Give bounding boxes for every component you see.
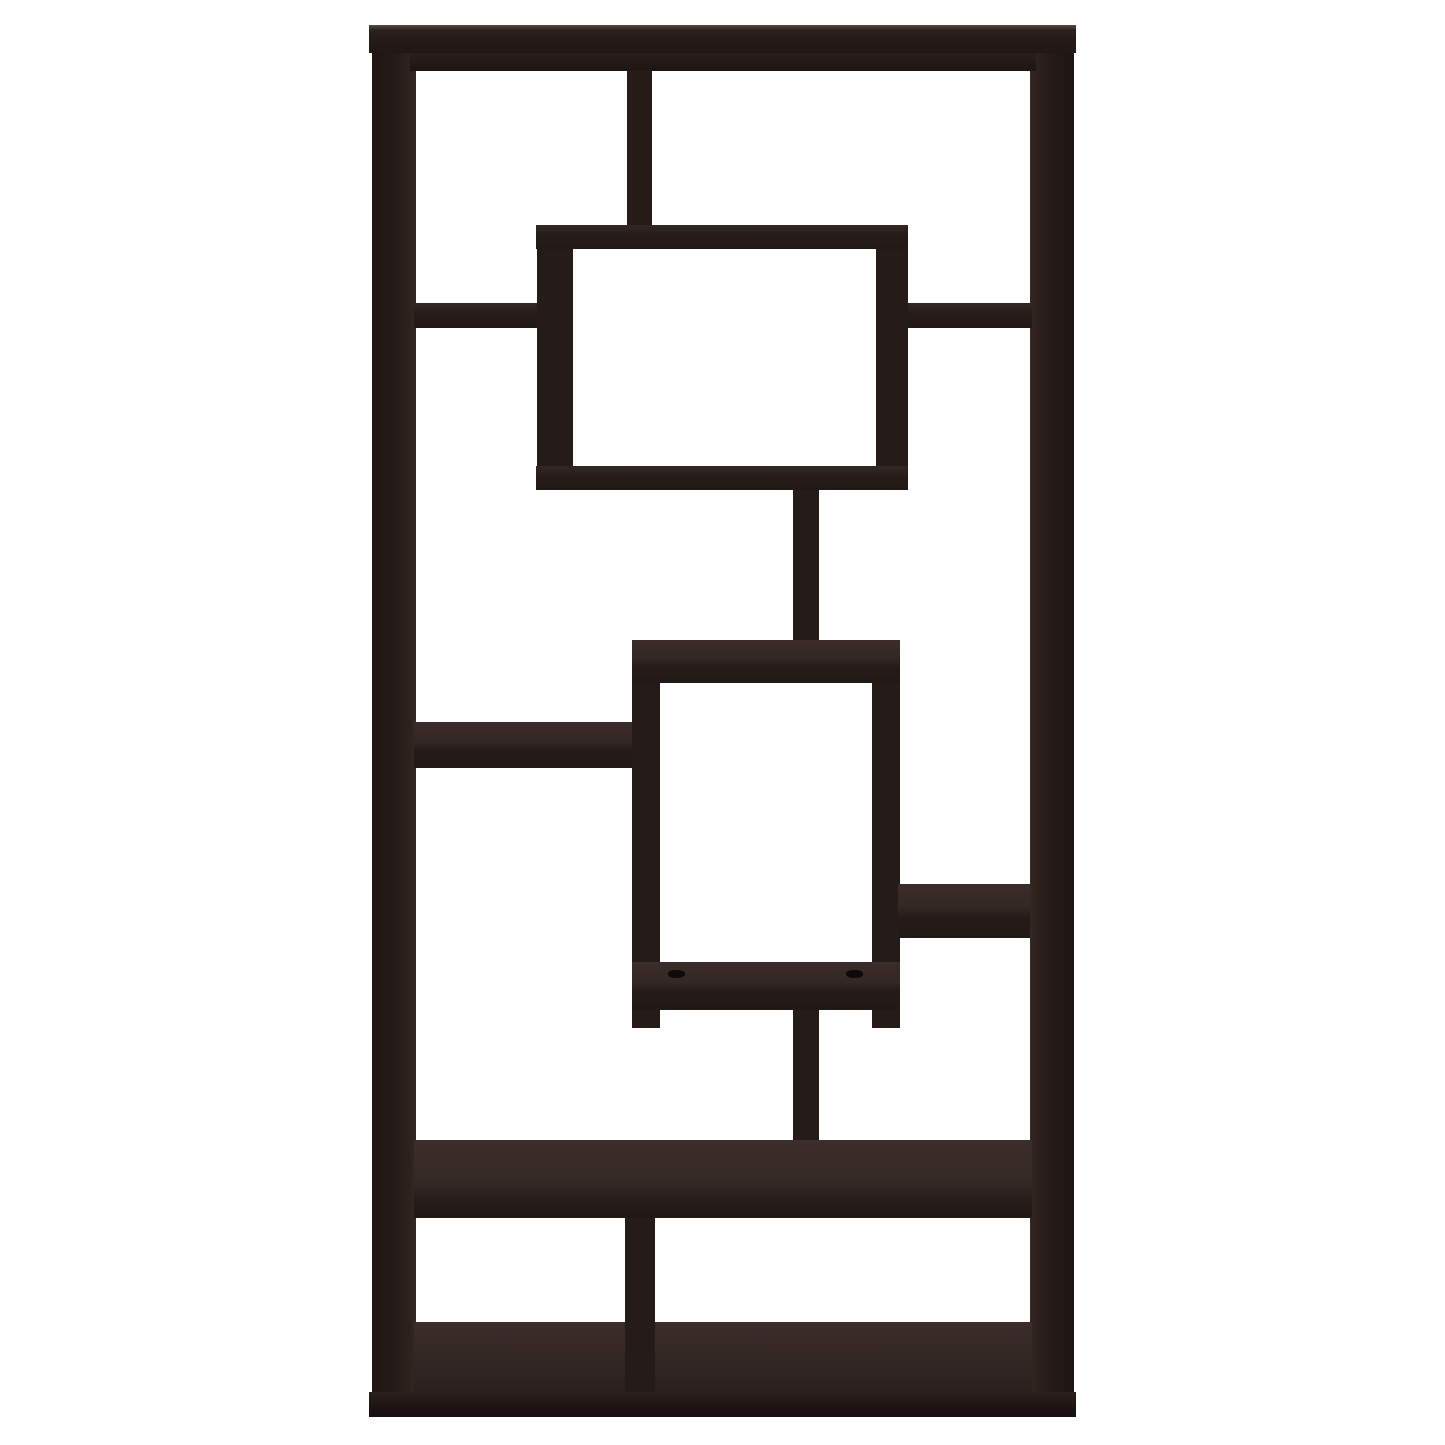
- top-cap-board: [369, 25, 1076, 53]
- middle-left-shelf: [414, 722, 632, 768]
- center-divider-lower: [793, 1010, 819, 1140]
- upper-box-top-shelf: [536, 225, 908, 249]
- center-divider-upper: [793, 490, 819, 642]
- bookshelf-product-photo: [0, 0, 1445, 1445]
- top-under-rail: [410, 52, 1036, 71]
- bottom-floor-surface: [414, 1322, 1032, 1392]
- upper-left-shelf: [414, 303, 541, 328]
- bottom-center-divider: [625, 1218, 655, 1392]
- middle-box-top-shelf: [632, 640, 900, 683]
- upper-box-right-panel: [876, 249, 908, 466]
- right-side-panel: [1030, 52, 1074, 1392]
- base-plinth: [369, 1392, 1076, 1417]
- shelf-peg-hole-left: [668, 970, 685, 978]
- upper-box-bottom-shelf: [536, 466, 908, 490]
- upper-right-shelf: [902, 303, 1032, 328]
- upper-box-left-panel: [537, 249, 573, 466]
- top-center-divider: [627, 70, 652, 226]
- middle-box-bottom-shelf: [632, 962, 900, 1010]
- shelf-peg-hole-right: [846, 970, 863, 978]
- left-side-panel: [372, 52, 416, 1392]
- middle-right-shelf: [898, 884, 1030, 938]
- long-lower-shelf: [414, 1140, 1032, 1218]
